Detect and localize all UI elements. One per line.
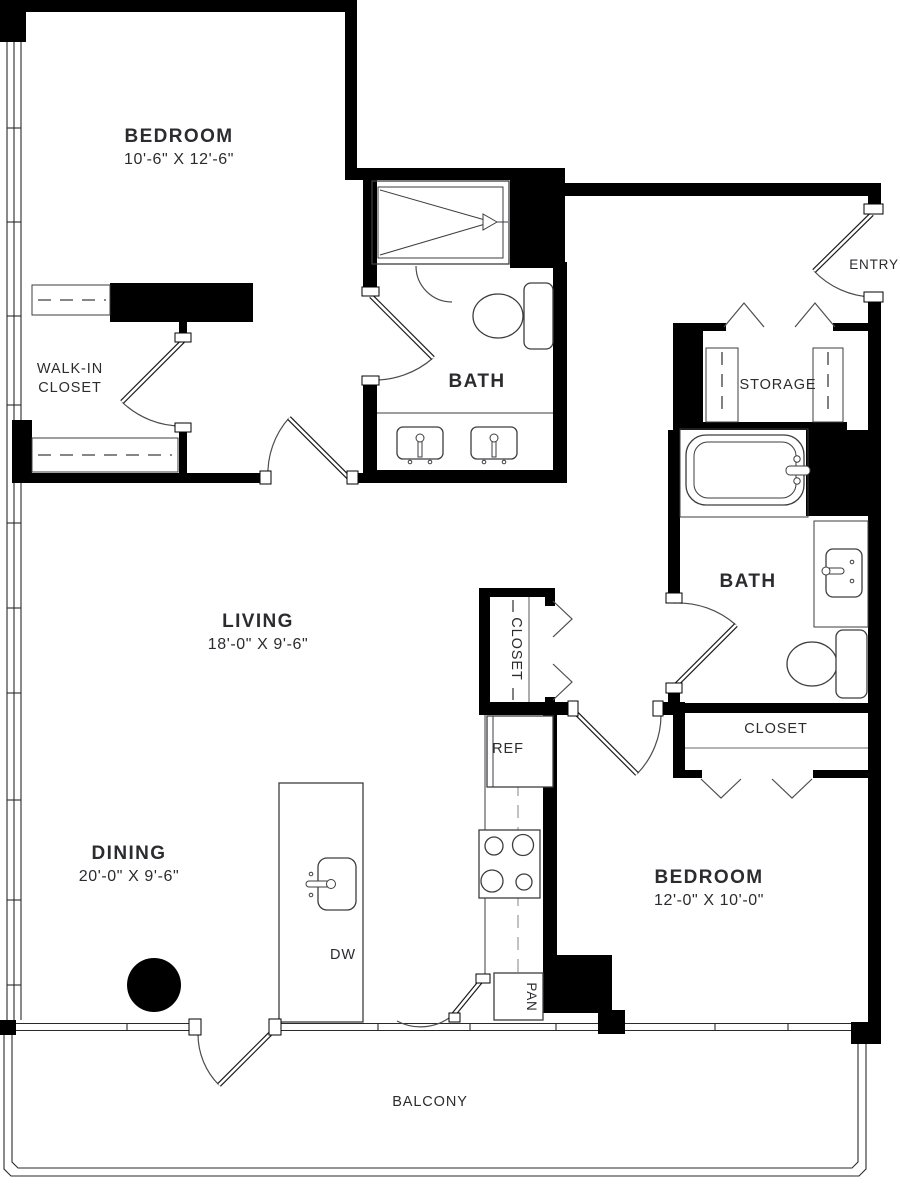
pantry-door xyxy=(397,981,481,1027)
bedroom1-label: BEDROOM xyxy=(124,126,233,147)
living-label: LIVING xyxy=(222,611,294,632)
balcony-label: BALCONY xyxy=(392,1094,468,1110)
toilet-icon xyxy=(787,630,867,698)
dining-dims: 20'-0" X 9'-6" xyxy=(79,868,180,885)
bifold-door-icon xyxy=(724,303,835,327)
bifold-door-icon xyxy=(553,601,572,700)
bedroom2-dims: 12'-0" X 10'-0" xyxy=(654,892,764,909)
bath2-label: BATH xyxy=(720,571,777,592)
dining-label: DINING xyxy=(92,843,167,864)
storage-fixtures xyxy=(706,303,843,422)
window-wall-west xyxy=(7,42,21,1020)
living-dims: 18'-0" X 9'-6" xyxy=(208,636,309,653)
entry-label: ENTRY xyxy=(849,257,899,272)
kitchen-island xyxy=(279,783,363,1022)
bath1-label: BATH xyxy=(449,371,506,392)
entry-door xyxy=(814,214,872,297)
vanity-double-sink xyxy=(377,413,553,464)
walkin-closet-label-line1: WALK-IN xyxy=(37,361,103,377)
floorplan-drawing: BEDROOM 10'-6" X 12'-6" LIVING 18'-0" X … xyxy=(0,0,900,1187)
stove-icon xyxy=(479,830,540,898)
bifold-door-icon xyxy=(701,779,812,798)
shower-icon xyxy=(372,181,509,264)
bedroom1-door xyxy=(268,418,348,478)
sink-icon xyxy=(397,427,443,464)
window-wall-south xyxy=(16,1023,851,1031)
toilet-icon xyxy=(473,283,553,349)
bedroom2-door xyxy=(577,714,661,774)
bathtub-icon xyxy=(680,429,810,517)
vanity-sink xyxy=(814,521,868,627)
pantry-label: PAN xyxy=(524,982,539,1011)
structural-column xyxy=(127,958,181,1012)
walkin-closet-door xyxy=(122,341,183,426)
bedroom2-closet-label: CLOSET xyxy=(744,721,807,737)
shower-door-arc xyxy=(416,266,452,302)
floorplan-page: BEDROOM 10'-6" X 12'-6" LIVING 18'-0" X … xyxy=(0,0,900,1187)
refrigerator-label: REF xyxy=(492,741,524,757)
sink-icon xyxy=(471,427,517,464)
storage-label: STORAGE xyxy=(740,377,817,393)
bedroom2-label: BEDROOM xyxy=(654,867,763,888)
balcony-door xyxy=(198,1034,270,1085)
window-mullions-south xyxy=(127,1023,788,1031)
bath2-door xyxy=(674,603,736,687)
hall-closet-label: CLOSET xyxy=(508,617,524,680)
kitchen xyxy=(279,715,553,1022)
walkin-closet-label-line2: CLOSET xyxy=(38,380,101,396)
dishwasher-label: DW xyxy=(330,947,356,963)
bath1-door xyxy=(371,296,433,380)
bedroom1-dims: 10'-6" X 12'-6" xyxy=(124,151,234,168)
